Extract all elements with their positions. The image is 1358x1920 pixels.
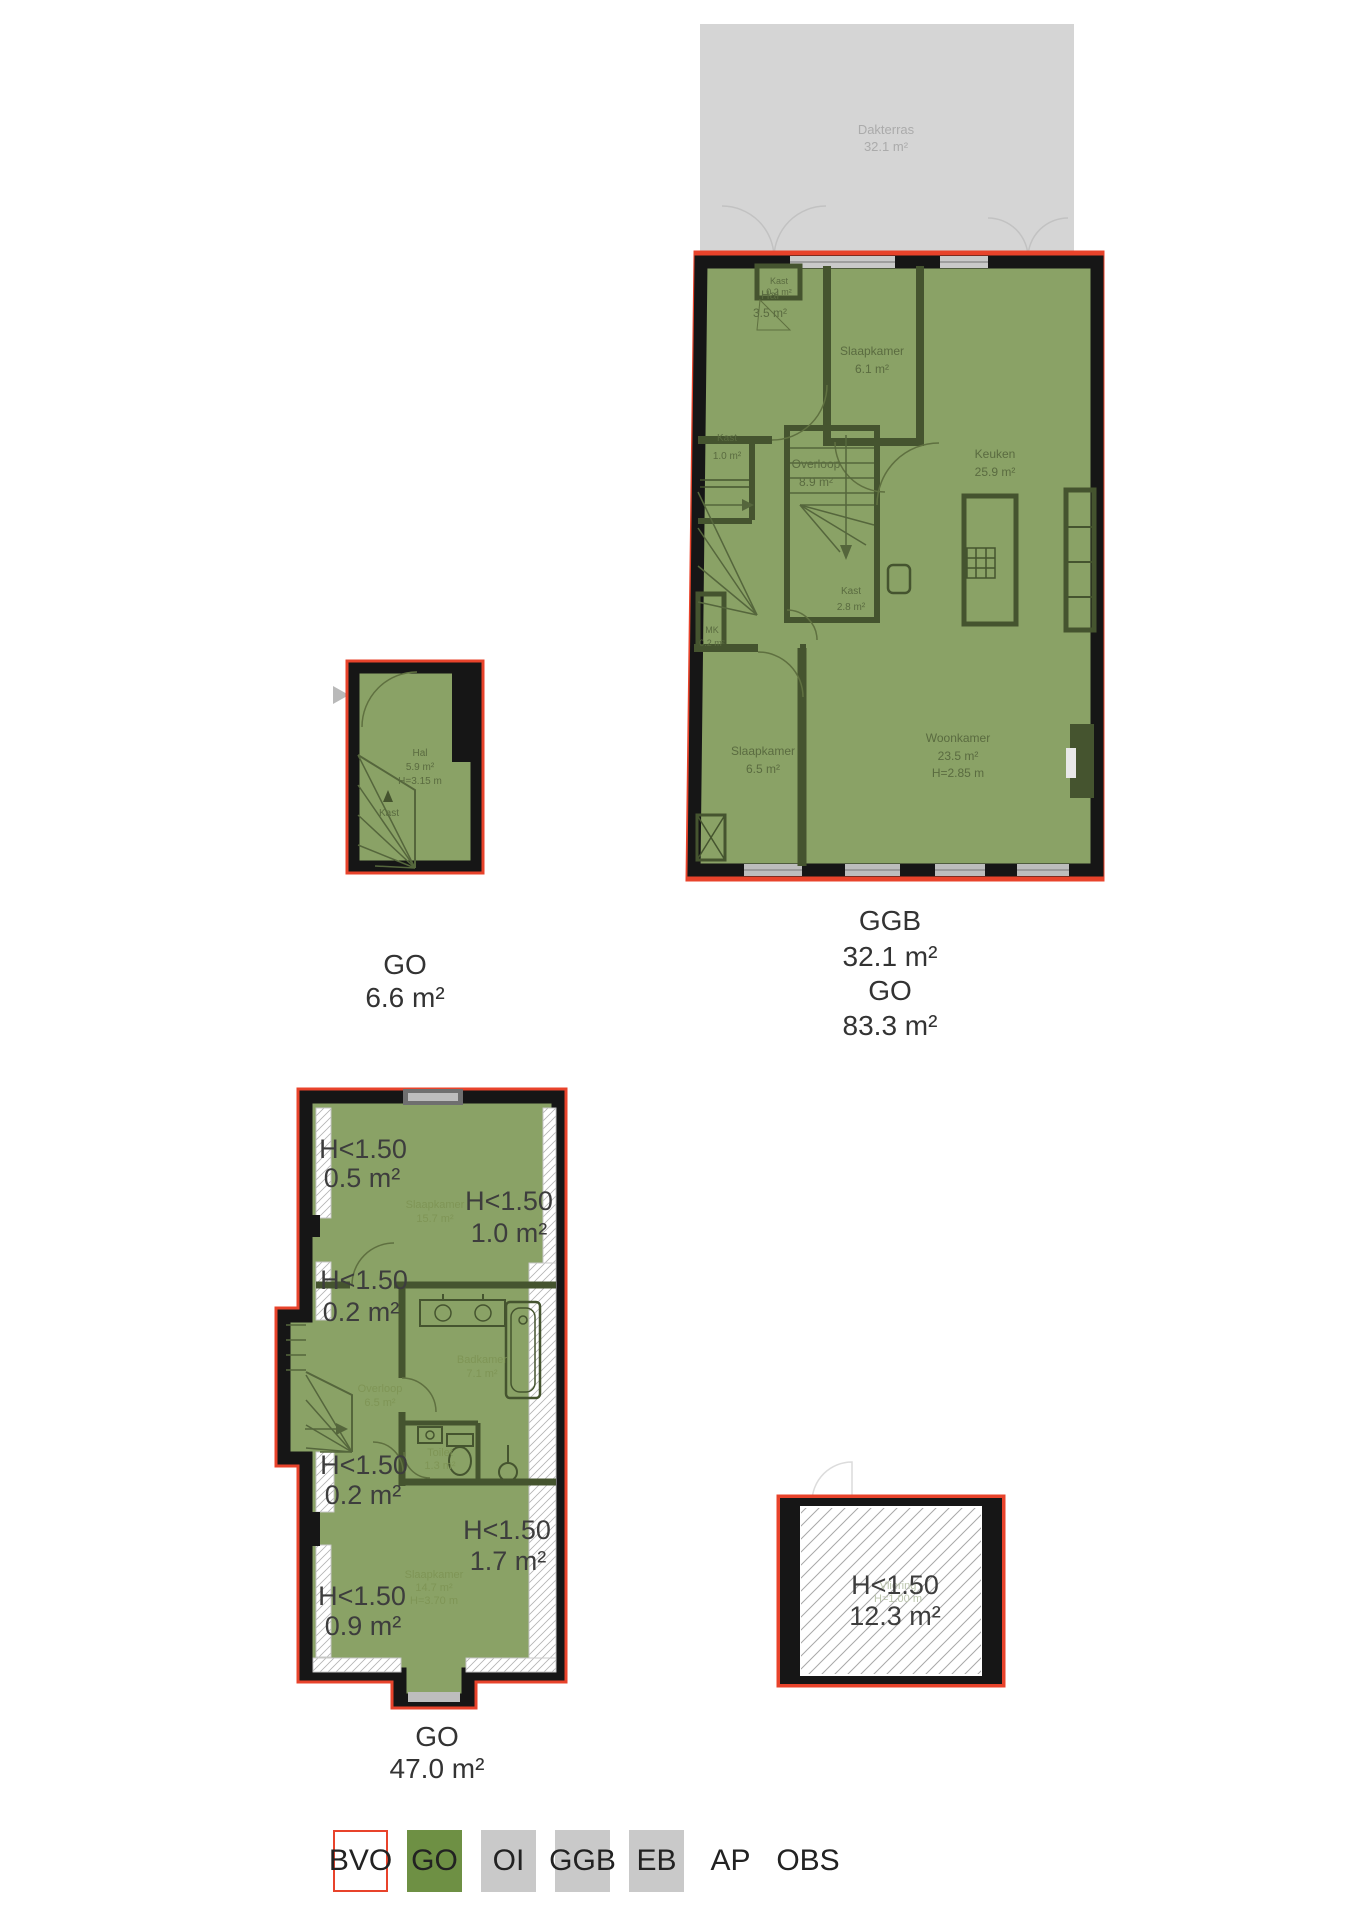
room-area: 25.9 m² bbox=[975, 465, 1016, 479]
room-label: Slaapkamer bbox=[406, 1199, 465, 1211]
entry-plan: Kast Hal 5.9 m² H=3.15 m GO 6.6 m² bbox=[333, 662, 482, 1013]
room-area: 6.5 m² bbox=[364, 1397, 396, 1409]
caption-line: GO bbox=[415, 1721, 459, 1752]
room-area: 2.8 m² bbox=[837, 602, 866, 613]
legend-label: AP bbox=[710, 1844, 750, 1878]
room-label: Kast bbox=[841, 586, 861, 597]
caption-line: 6.6 m² bbox=[365, 982, 444, 1013]
room-label: Slaapkamer bbox=[840, 344, 904, 358]
low-headroom-area: 0.2 m² bbox=[325, 1480, 402, 1510]
room-area: 7.1 m² bbox=[466, 1368, 498, 1380]
room-area: 23.5 m² bbox=[938, 749, 979, 763]
low-headroom-area: 12.3 m² bbox=[849, 1601, 941, 1631]
terrace-area-value: 32.1 m² bbox=[864, 139, 909, 154]
room-area: 8.9 m² bbox=[799, 475, 833, 489]
legend-label: BVO bbox=[329, 1844, 392, 1878]
caption-line: GO bbox=[868, 975, 912, 1006]
room-height: H=3.15 m bbox=[398, 776, 442, 787]
floorplan-canvas: Dakterras 32.1 m² bbox=[0, 0, 1358, 1920]
low-headroom-label: H<1.50 bbox=[318, 1581, 406, 1611]
caption-line: 32.1 m² bbox=[843, 941, 938, 972]
low-headroom-label: H<1.50 bbox=[320, 1450, 408, 1480]
wall-stub bbox=[306, 1215, 320, 1237]
legend-label: OBS bbox=[776, 1844, 839, 1878]
side-wall bbox=[982, 1504, 996, 1678]
legend-swatch-ggb: GGB bbox=[555, 1830, 610, 1892]
legend-swatch-obs: OBS bbox=[777, 1830, 839, 1892]
room-area: 3.5 m² bbox=[753, 306, 787, 320]
legend-label: GGB bbox=[549, 1844, 616, 1878]
legend: BVO GO OI GGB EB AP OBS bbox=[333, 1830, 839, 1892]
low-headroom-area: 0.2 m² bbox=[323, 1297, 400, 1327]
main-plan: Kast 0.2 m² Hal 3.5 m² Slaapkamer 6.1 m²… bbox=[688, 253, 1102, 1041]
kitchen-island bbox=[964, 496, 1016, 624]
main-plan-caption: GGB 32.1 m² GO 83.3 m² bbox=[843, 905, 938, 1041]
low-headroom-area: 0.9 m² bbox=[325, 1611, 402, 1641]
upper-plan: Slaapkamer 15.7 m² Overloop 6.5 m² Badka… bbox=[277, 1089, 565, 1784]
low-headroom-label: H<1.50 bbox=[851, 1570, 939, 1600]
upper-plan-caption: GO 47.0 m² bbox=[390, 1721, 485, 1784]
room-label: Hal bbox=[412, 748, 427, 759]
room-height: H=3.70 m bbox=[410, 1595, 458, 1607]
low-headroom-area: 0.5 m² bbox=[324, 1163, 401, 1193]
legend-swatch-oi: OI bbox=[481, 1830, 536, 1892]
room-area: 15.7 m² bbox=[416, 1213, 454, 1225]
room-label: Hal bbox=[761, 288, 779, 302]
room-area: 1.0 m² bbox=[713, 451, 742, 462]
wall-stub bbox=[306, 1512, 320, 1546]
legend-label: GO bbox=[411, 1844, 458, 1878]
low-headroom-area: 1.0 m² bbox=[471, 1218, 548, 1248]
room-label: Kast bbox=[717, 433, 737, 444]
room-label: MK bbox=[705, 625, 719, 635]
low-headroom-label: H<1.50 bbox=[463, 1515, 551, 1545]
attic-plan: Vliering H=1.00 m H<1.50 12.3 m² bbox=[779, 1462, 1003, 1685]
caption-line: GO bbox=[383, 949, 427, 980]
legend-swatch-ap: AP bbox=[703, 1830, 758, 1892]
room-label: Toilet bbox=[427, 1447, 453, 1459]
low-headroom-area: 1.7 m² bbox=[470, 1546, 547, 1576]
room-label: Badkamer bbox=[457, 1354, 507, 1366]
wall-notch bbox=[452, 670, 476, 762]
fireplace bbox=[1066, 724, 1094, 798]
side-wall bbox=[786, 1504, 800, 1678]
low-headroom-label: H<1.50 bbox=[320, 1265, 408, 1295]
room-area: 6.1 m² bbox=[855, 362, 889, 376]
room-label: Slaapkamer bbox=[731, 744, 795, 758]
room-label: Slaapkamer bbox=[405, 1569, 464, 1581]
terrace-name: Dakterras bbox=[858, 122, 915, 137]
room-label: Woonkamer bbox=[926, 731, 990, 745]
room-label: Kast bbox=[379, 808, 399, 819]
legend-swatch-go: GO bbox=[407, 1830, 462, 1892]
low-headroom-label: H<1.50 bbox=[465, 1186, 553, 1216]
room-label: Keuken bbox=[975, 447, 1016, 461]
caption-line: 83.3 m² bbox=[843, 1010, 938, 1041]
legend-swatch-bvo: BVO bbox=[333, 1830, 388, 1892]
caption-line: 47.0 m² bbox=[390, 1753, 485, 1784]
room-area: 14.7 m² bbox=[415, 1582, 453, 1594]
room-area: 1.3 m² bbox=[424, 1460, 456, 1472]
terrace-area: Dakterras 32.1 m² bbox=[700, 24, 1074, 258]
entry-plan-caption: GO 6.6 m² bbox=[365, 949, 444, 1013]
room-label: Overloop bbox=[358, 1383, 403, 1395]
caption-line: GGB bbox=[859, 905, 921, 936]
low-headroom-label: H<1.50 bbox=[319, 1134, 407, 1164]
legend-label: OI bbox=[493, 1844, 525, 1878]
room-label: Overloop bbox=[792, 457, 841, 471]
legend-label: EB bbox=[636, 1844, 676, 1878]
room-area: 0.2 m² bbox=[699, 638, 725, 648]
room-label: Kast bbox=[770, 276, 789, 286]
room-area: 6.5 m² bbox=[746, 762, 780, 776]
room-area: 5.9 m² bbox=[406, 762, 435, 773]
legend-swatch-eb: EB bbox=[629, 1830, 684, 1892]
room-height: H=2.85 m bbox=[932, 766, 984, 780]
